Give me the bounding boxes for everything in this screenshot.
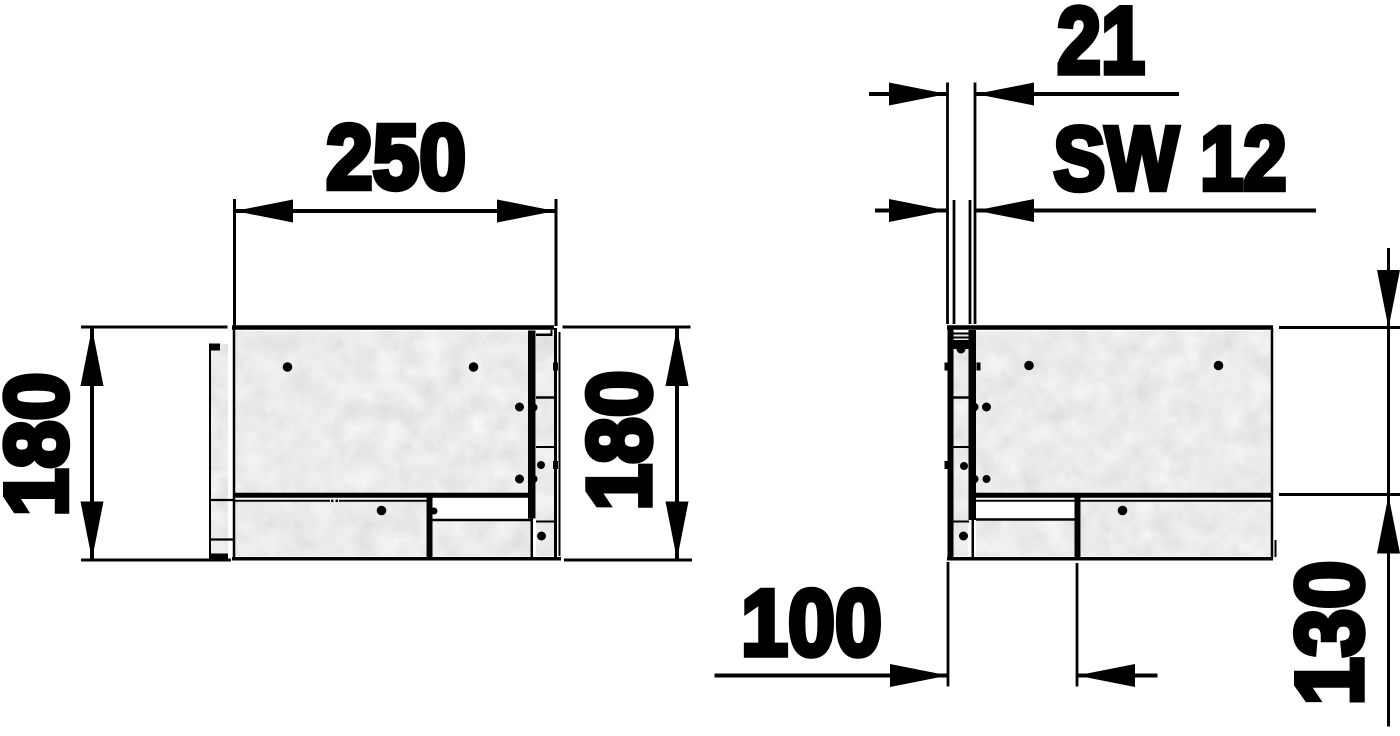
svg-text:100: 100 bbox=[741, 570, 882, 675]
svg-text:SW 12: SW 12 bbox=[1054, 110, 1287, 210]
svg-text:21: 21 bbox=[1057, 0, 1145, 94]
svg-text:180: 180 bbox=[570, 371, 670, 511]
svg-text:130: 130 bbox=[1277, 561, 1383, 706]
svg-text:250: 250 bbox=[326, 107, 466, 209]
svg-text:180: 180 bbox=[0, 373, 86, 517]
